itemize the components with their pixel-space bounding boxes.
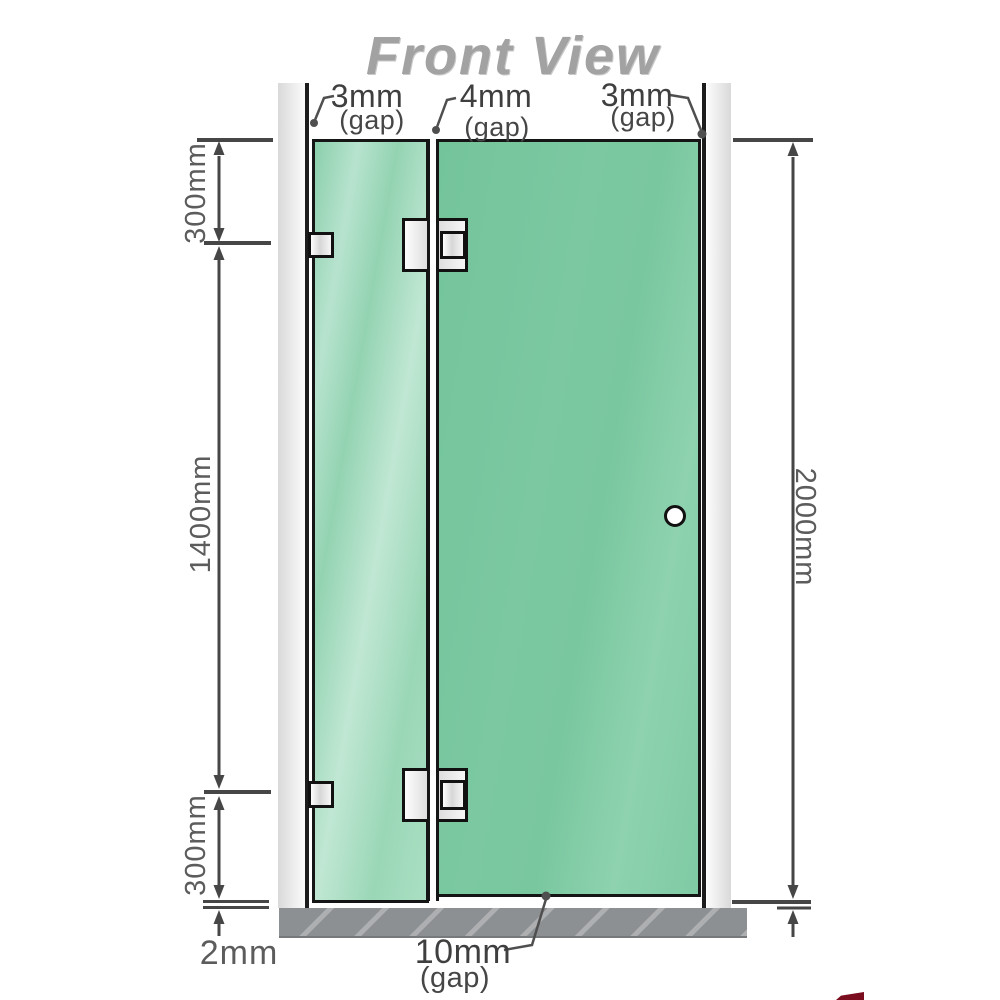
top-hinge-tab (440, 231, 466, 259)
right-wall-edge-line (702, 83, 706, 908)
gap-label-right-unit: (gap) (583, 103, 703, 131)
top-wall-bracket (308, 232, 334, 258)
door-glass-panel (436, 139, 701, 897)
right-wall (707, 83, 731, 908)
bottom-hinge-tab (440, 780, 466, 810)
dim-label-right-height: 2000mm (789, 447, 821, 607)
door-handle-knob (664, 505, 686, 527)
dim-label-middle-left: 1400mm (185, 434, 217, 594)
floor-base (279, 908, 747, 938)
left-wall (278, 83, 305, 908)
gap-label-bottom-unit: (gap) (385, 963, 525, 993)
dim-label-floor-gap: 2mm (169, 936, 309, 970)
dim-label-top-left: 300mm (180, 118, 212, 268)
gap-label-middle-unit: (gap) (437, 113, 557, 141)
dim-label-bottom-left: 300mm (180, 770, 212, 920)
panel-gap-strip (427, 139, 439, 901)
front-view-diagram: Front View (0, 0, 1000, 1000)
logo-fragment (836, 992, 864, 1000)
bottom-wall-bracket (308, 781, 334, 808)
gap-label-middle-value: 4mm (436, 80, 556, 112)
gap-label-left-unit: (gap) (312, 106, 432, 134)
